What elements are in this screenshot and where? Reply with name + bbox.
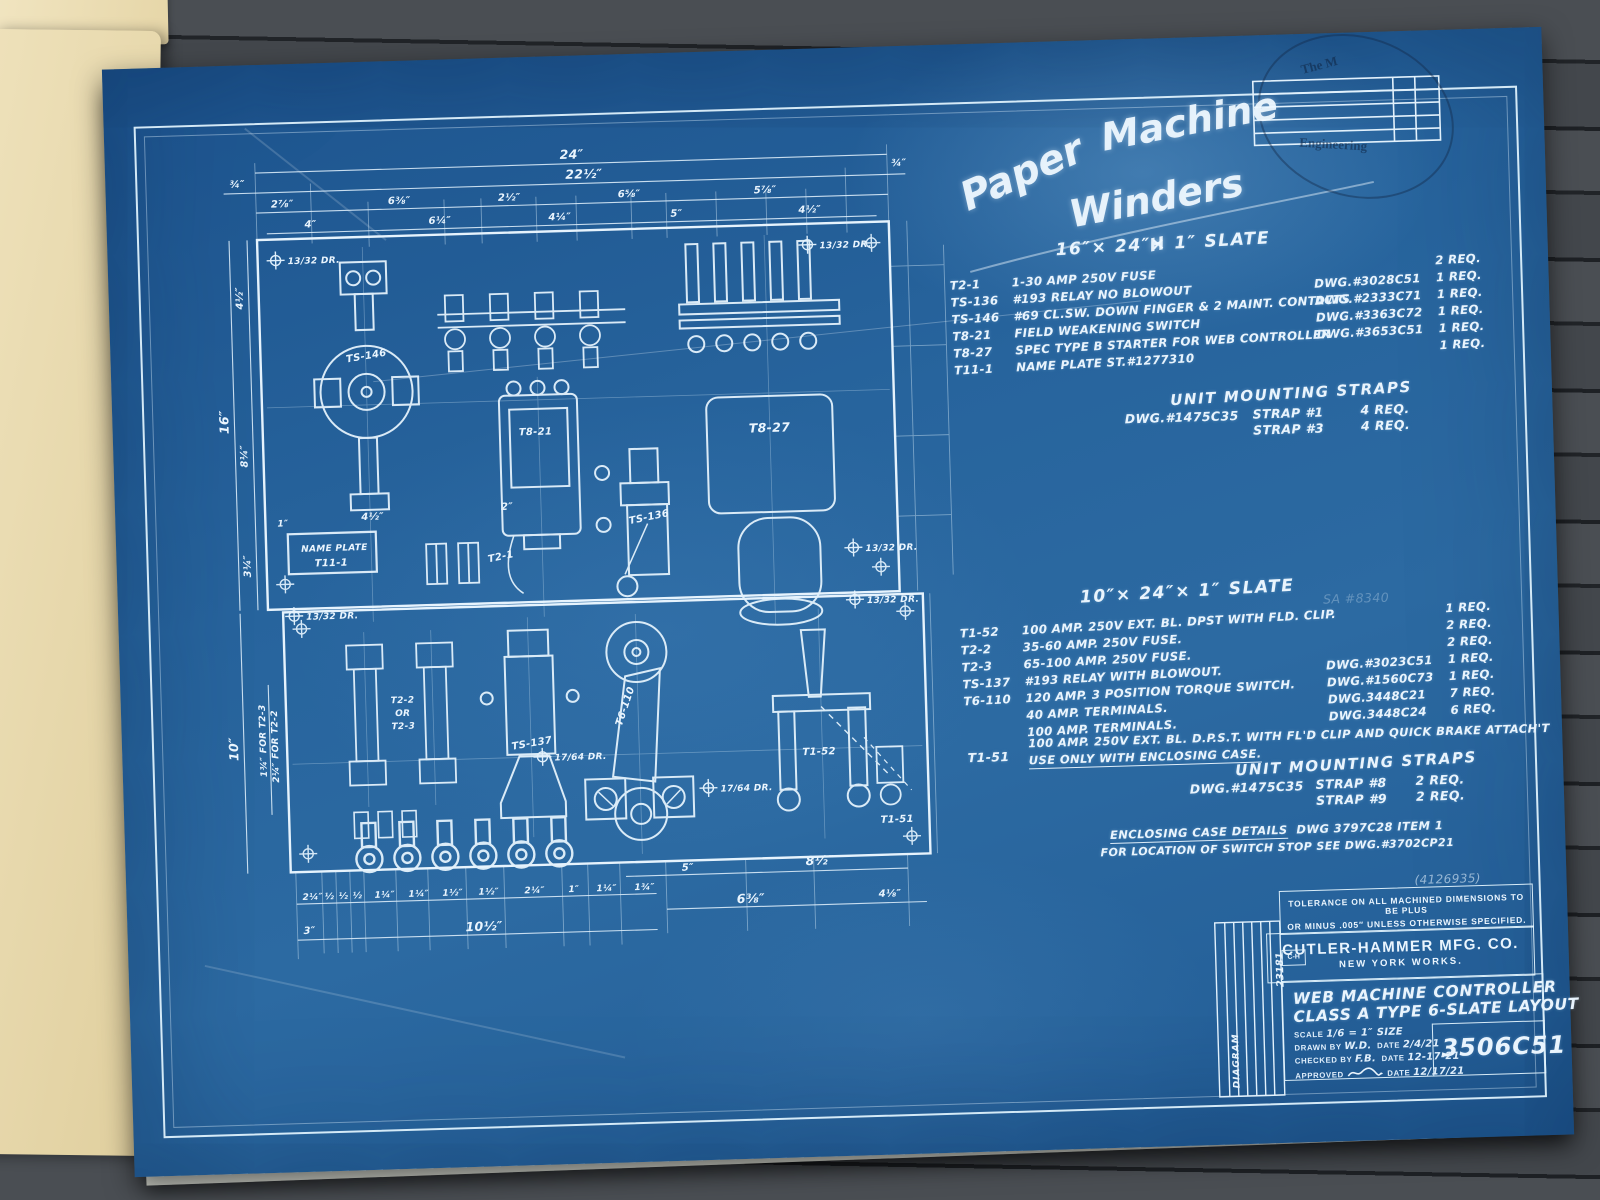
part-req: 1 REQ. [1437, 301, 1502, 318]
label-t1-52: T1-52 [802, 746, 836, 758]
part-req: 1 REQ. [1438, 318, 1503, 335]
part-ref [964, 708, 1027, 725]
hole-callout: 13/32 DR. [288, 256, 340, 268]
hole-callout: 13/32 DR. [819, 240, 871, 252]
date-label: DATE [1377, 1041, 1400, 1051]
dim-label: 5″ [670, 208, 683, 219]
approval-signature [1346, 1066, 1384, 1079]
approved-label: APPROVED [1295, 1070, 1344, 1080]
label-t1-51: T1-51 [880, 814, 914, 826]
part-ref: T1-52 [960, 623, 1023, 640]
checked-value: F.B. [1355, 1053, 1376, 1065]
label-t8-27: T8-27 [749, 419, 791, 435]
scale-label: SCALE [1294, 1030, 1324, 1040]
part-req: 1 REQ. [1448, 666, 1513, 683]
dim-label: 1¾″ [634, 883, 655, 894]
name-plate-line2: T11-1 [314, 558, 348, 570]
cutler-hammer-logo: C-H [1282, 949, 1306, 966]
dim-note: 2¼″ FOR T2-2 [269, 710, 282, 783]
component-ts146 [311, 260, 422, 511]
straps2-strap1: STRAP #8 [1315, 775, 1386, 792]
label-ts137: TS-137 [511, 735, 553, 753]
straps2-req1: 2 REQ. [1415, 771, 1464, 787]
title-box: WEB MACHINE CONTROLLER CLASS A TYPE 6-SL… [1281, 973, 1546, 1081]
hole-callout: 17/64 DR. [554, 752, 606, 764]
part-req: 2 REQ. [1447, 632, 1512, 649]
dim-label: ½ [324, 892, 334, 902]
dim-label: 16″ [216, 410, 232, 434]
straps1-req1: 4 REQ. [1360, 401, 1409, 417]
dim-label: 2¼″ [302, 891, 323, 903]
dim-label: 1¼″ [374, 889, 395, 901]
dim-label: ¾″ [229, 179, 245, 190]
part-req: 1 REQ. [1437, 284, 1502, 301]
dim-label: 6⅝″ [618, 189, 641, 201]
dim-label: 3″ [303, 926, 316, 937]
straps1-strap2: STRAP #3 [1253, 421, 1324, 438]
dim-label: 10″ [226, 737, 242, 761]
dim-note: 1¾″ FOR T2-3 [258, 704, 270, 777]
straps1-strap1: STRAP #1 [1252, 405, 1323, 422]
drawn-value: W.D. [1344, 1040, 1372, 1052]
part-ref: TS-146 [951, 310, 1014, 327]
dim-label: 2⅞″ [271, 199, 294, 211]
scale-value: 1/6 = 1″ SIZE [1326, 1026, 1403, 1039]
part-ref: T6-110 [963, 691, 1026, 708]
part-req: 2 REQ. [1446, 615, 1511, 632]
part-req: 2 REQ. [1435, 250, 1500, 267]
label-t8-21: T8-21 [519, 426, 553, 438]
date-label: DATE [1387, 1068, 1410, 1078]
dim-label: 1¼″ [408, 888, 429, 900]
hole-callout: 13/32 DR. [867, 595, 919, 607]
dim-label: 2¼″ [524, 885, 545, 897]
dim-label: ½ [338, 892, 348, 902]
dim-label: 4½″ [360, 510, 384, 523]
fuse-clip-row [437, 290, 627, 372]
dim-label: 4¼″ [547, 211, 571, 224]
part-req: 7 REQ. [1449, 683, 1514, 700]
side-label-diagram: DIAGRAM [1231, 1033, 1243, 1088]
dim-label: 5⅞″ [754, 185, 777, 197]
dim-label: 8¼″ [238, 444, 251, 467]
part-req: 1 REQ. [1445, 598, 1510, 615]
straps2-req2: 2 REQ. [1416, 787, 1465, 803]
label-t2-3: T2-3 [391, 722, 415, 733]
dim-label: 4½″ [233, 287, 246, 311]
dim-label: 6¼″ [428, 214, 451, 227]
straps1-req2: 4 REQ. [1361, 417, 1410, 433]
part-ref: TS-136 [950, 293, 1013, 310]
date-label: DATE [1381, 1053, 1404, 1063]
approved-date: 12/17/21 [1413, 1066, 1465, 1079]
component-t8-21 [498, 380, 582, 594]
component-t2-1 [426, 543, 479, 585]
part-req: 1 REQ. [1436, 267, 1501, 284]
stamp-text-bottom: Engineering [1299, 135, 1368, 155]
label-t6-110: T6-110 [614, 685, 637, 727]
dim-label: 1½″ [442, 888, 463, 899]
t151-ref: T1-51 [967, 749, 1009, 765]
dim-label: 6⅜″ [388, 195, 411, 207]
meta-rows: SCALE 1/6 = 1″ SIZE DRAWN BY W.D. DATE 2… [1294, 1025, 1465, 1082]
part-ref: TS-137 [962, 674, 1025, 691]
hole-callout: 13/32 DR. [865, 543, 917, 555]
dim-label: 4″ [303, 219, 317, 230]
label-t2-1: T2-1 [487, 549, 515, 565]
dim-label: 2½″ [498, 191, 521, 204]
dim-label: 4½″ [797, 203, 821, 216]
label-ts136: TS-136 [628, 508, 670, 527]
drawn-date: 2/4/21 [1403, 1038, 1440, 1050]
dim-label: 22½″ [565, 166, 603, 182]
dim-label: 1″ [277, 519, 288, 529]
dim-label: 24″ [559, 146, 583, 162]
hole-callout: 17/64 DR. [720, 783, 772, 795]
photo-of-blueprint-on-deck: 24″ ¾″ 22½″ ¾″ 2⅞″ 6⅜″ 2½″ 6⅝″ 5⅞″ 4″ 6¼… [0, 0, 1600, 1200]
drawn-label: DRAWN BY [1294, 1042, 1341, 1052]
part-ref: T2-1 [949, 276, 1012, 293]
dim-label: 1″ [568, 885, 579, 895]
dim-label: 4⅛″ [878, 888, 902, 900]
checked-label: CHECKED BY [1295, 1055, 1353, 1066]
name-plate-line1: NAME PLATE [301, 543, 368, 555]
dim-label: 1¼″ [596, 883, 617, 895]
label-or: OR [395, 709, 410, 719]
part-ref: T2-3 [961, 657, 1024, 674]
label-t2-2: T2-2 [391, 696, 415, 707]
dim-label: ½ [352, 891, 362, 901]
hole-callout: 13/32 DR. [306, 611, 358, 623]
dim-label: 3¼″ [241, 554, 254, 577]
dim-label: 5″ [682, 862, 695, 873]
stamp-text-top: The M [1299, 53, 1339, 78]
part-ref: T8-27 [953, 343, 1016, 360]
dim-label: 8½″ [805, 852, 834, 868]
part-req: 1 REQ. [1448, 649, 1513, 666]
part-ref: T8-21 [952, 326, 1015, 343]
label-ts146: TS-146 [345, 348, 387, 366]
component-t1-52 [771, 628, 892, 811]
checked-date: 12-17-21 [1407, 1051, 1460, 1064]
part-ref: T2-2 [960, 640, 1023, 657]
dim-label: 10½″ [465, 918, 503, 934]
dim-label: 1½″ [478, 887, 499, 898]
dim-label: 6⅜″ [737, 890, 766, 906]
component-t6-110 [581, 620, 695, 841]
straps2-strap2: STRAP #9 [1316, 791, 1387, 808]
blueprint-sheet: 24″ ¾″ 22½″ ¾″ 2⅞″ 6⅜″ 2½″ 6⅝″ 5⅞″ 4″ 6¼… [102, 27, 1574, 1177]
dim-label: ¾″ [891, 158, 907, 169]
